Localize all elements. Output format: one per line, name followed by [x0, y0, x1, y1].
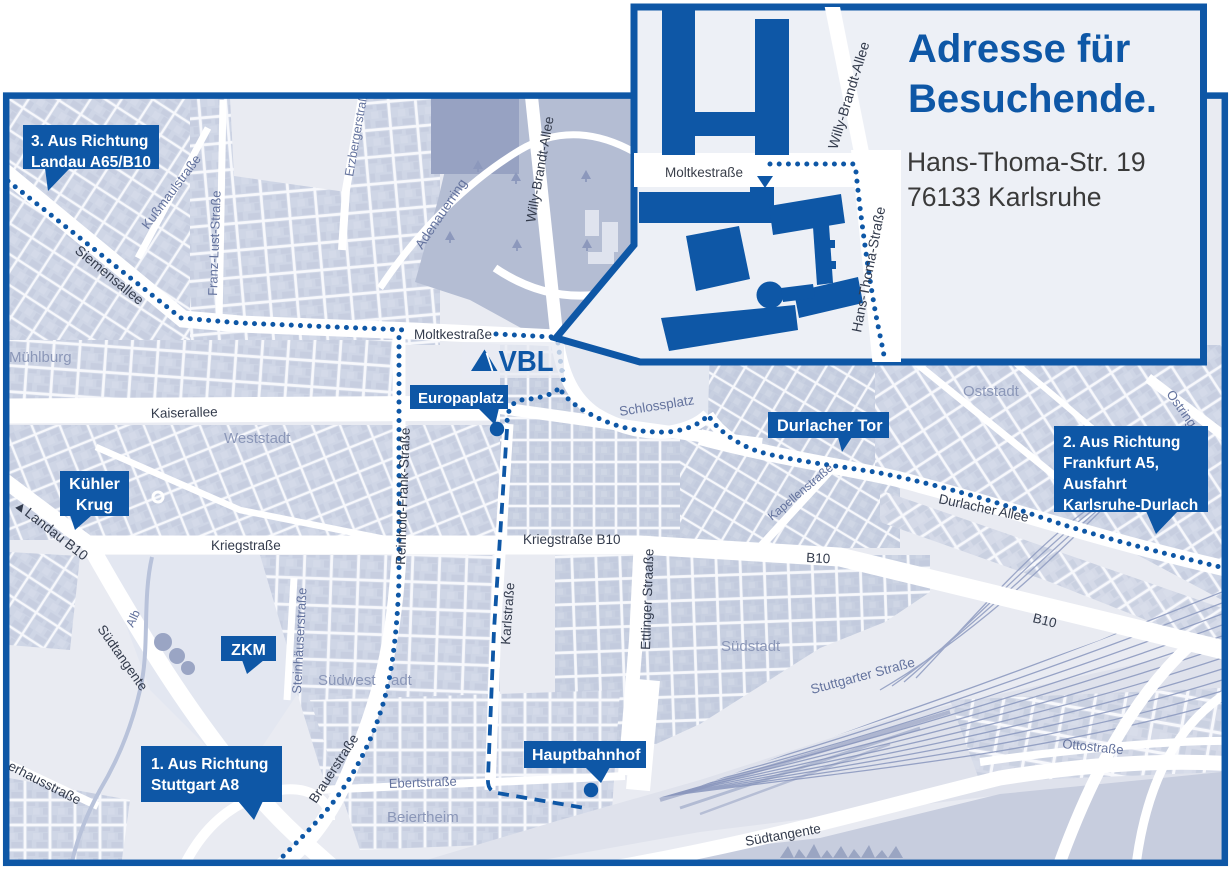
svg-text:Ebertstraße: Ebertstraße [389, 774, 457, 791]
svg-text:Landau A65/B10: Landau A65/B10 [31, 154, 151, 171]
svg-text:Südwest: Südwest [318, 672, 376, 689]
svg-text:Moltkestraße: Moltkestraße [414, 327, 492, 342]
svg-text:Südstadt: Südstadt [721, 638, 781, 655]
svg-text:2. Aus Richtung: 2. Aus Richtung [1063, 434, 1180, 451]
svg-text:Krug: Krug [76, 497, 113, 514]
svg-text:Durlacher Tor: Durlacher Tor [777, 417, 883, 435]
svg-text:Hauptbahnhof: Hauptbahnhof [532, 747, 641, 764]
svg-text:Kriegstraße B10: Kriegstraße B10 [523, 532, 621, 547]
svg-text:Ausfahrt: Ausfahrt [1063, 476, 1127, 493]
svg-text:ZKM: ZKM [231, 642, 266, 659]
svg-text:Europaplatz: Europaplatz [418, 390, 504, 407]
svg-text:Hans-Thoma-Str. 19: Hans-Thoma-Str. 19 [907, 147, 1146, 177]
svg-text:adt: adt [391, 672, 413, 689]
svg-text:Kaiserallee: Kaiserallee [151, 404, 218, 421]
svg-text:1. Aus Richtung: 1. Aus Richtung [151, 756, 268, 773]
svg-text:B10: B10 [806, 550, 831, 566]
svg-text:Besuchende.: Besuchende. [908, 77, 1157, 121]
svg-text:Mühlburg: Mühlburg [9, 349, 72, 366]
svg-text:Moltkestraße: Moltkestraße [665, 165, 743, 180]
svg-text:Kriegstraße: Kriegstraße [211, 538, 281, 553]
svg-text:Kühler: Kühler [69, 476, 120, 493]
svg-text:VBL: VBL [499, 344, 554, 377]
svg-text:Weststadt: Weststadt [224, 430, 291, 447]
svg-text:Oststadt: Oststadt [963, 383, 1020, 400]
svg-text:Beiertheim: Beiertheim [387, 809, 459, 826]
svg-text:Stuttgart A8: Stuttgart A8 [151, 777, 239, 794]
svg-text:Karlsruhe-Durlach: Karlsruhe-Durlach [1063, 497, 1198, 514]
svg-text:76133 Karlsruhe: 76133 Karlsruhe [907, 182, 1101, 212]
svg-text:3. Aus Richtung: 3. Aus Richtung [31, 133, 148, 150]
svg-text:Adresse für: Adresse für [908, 27, 1130, 71]
svg-text:Frankfurt A5,: Frankfurt A5, [1063, 455, 1159, 472]
